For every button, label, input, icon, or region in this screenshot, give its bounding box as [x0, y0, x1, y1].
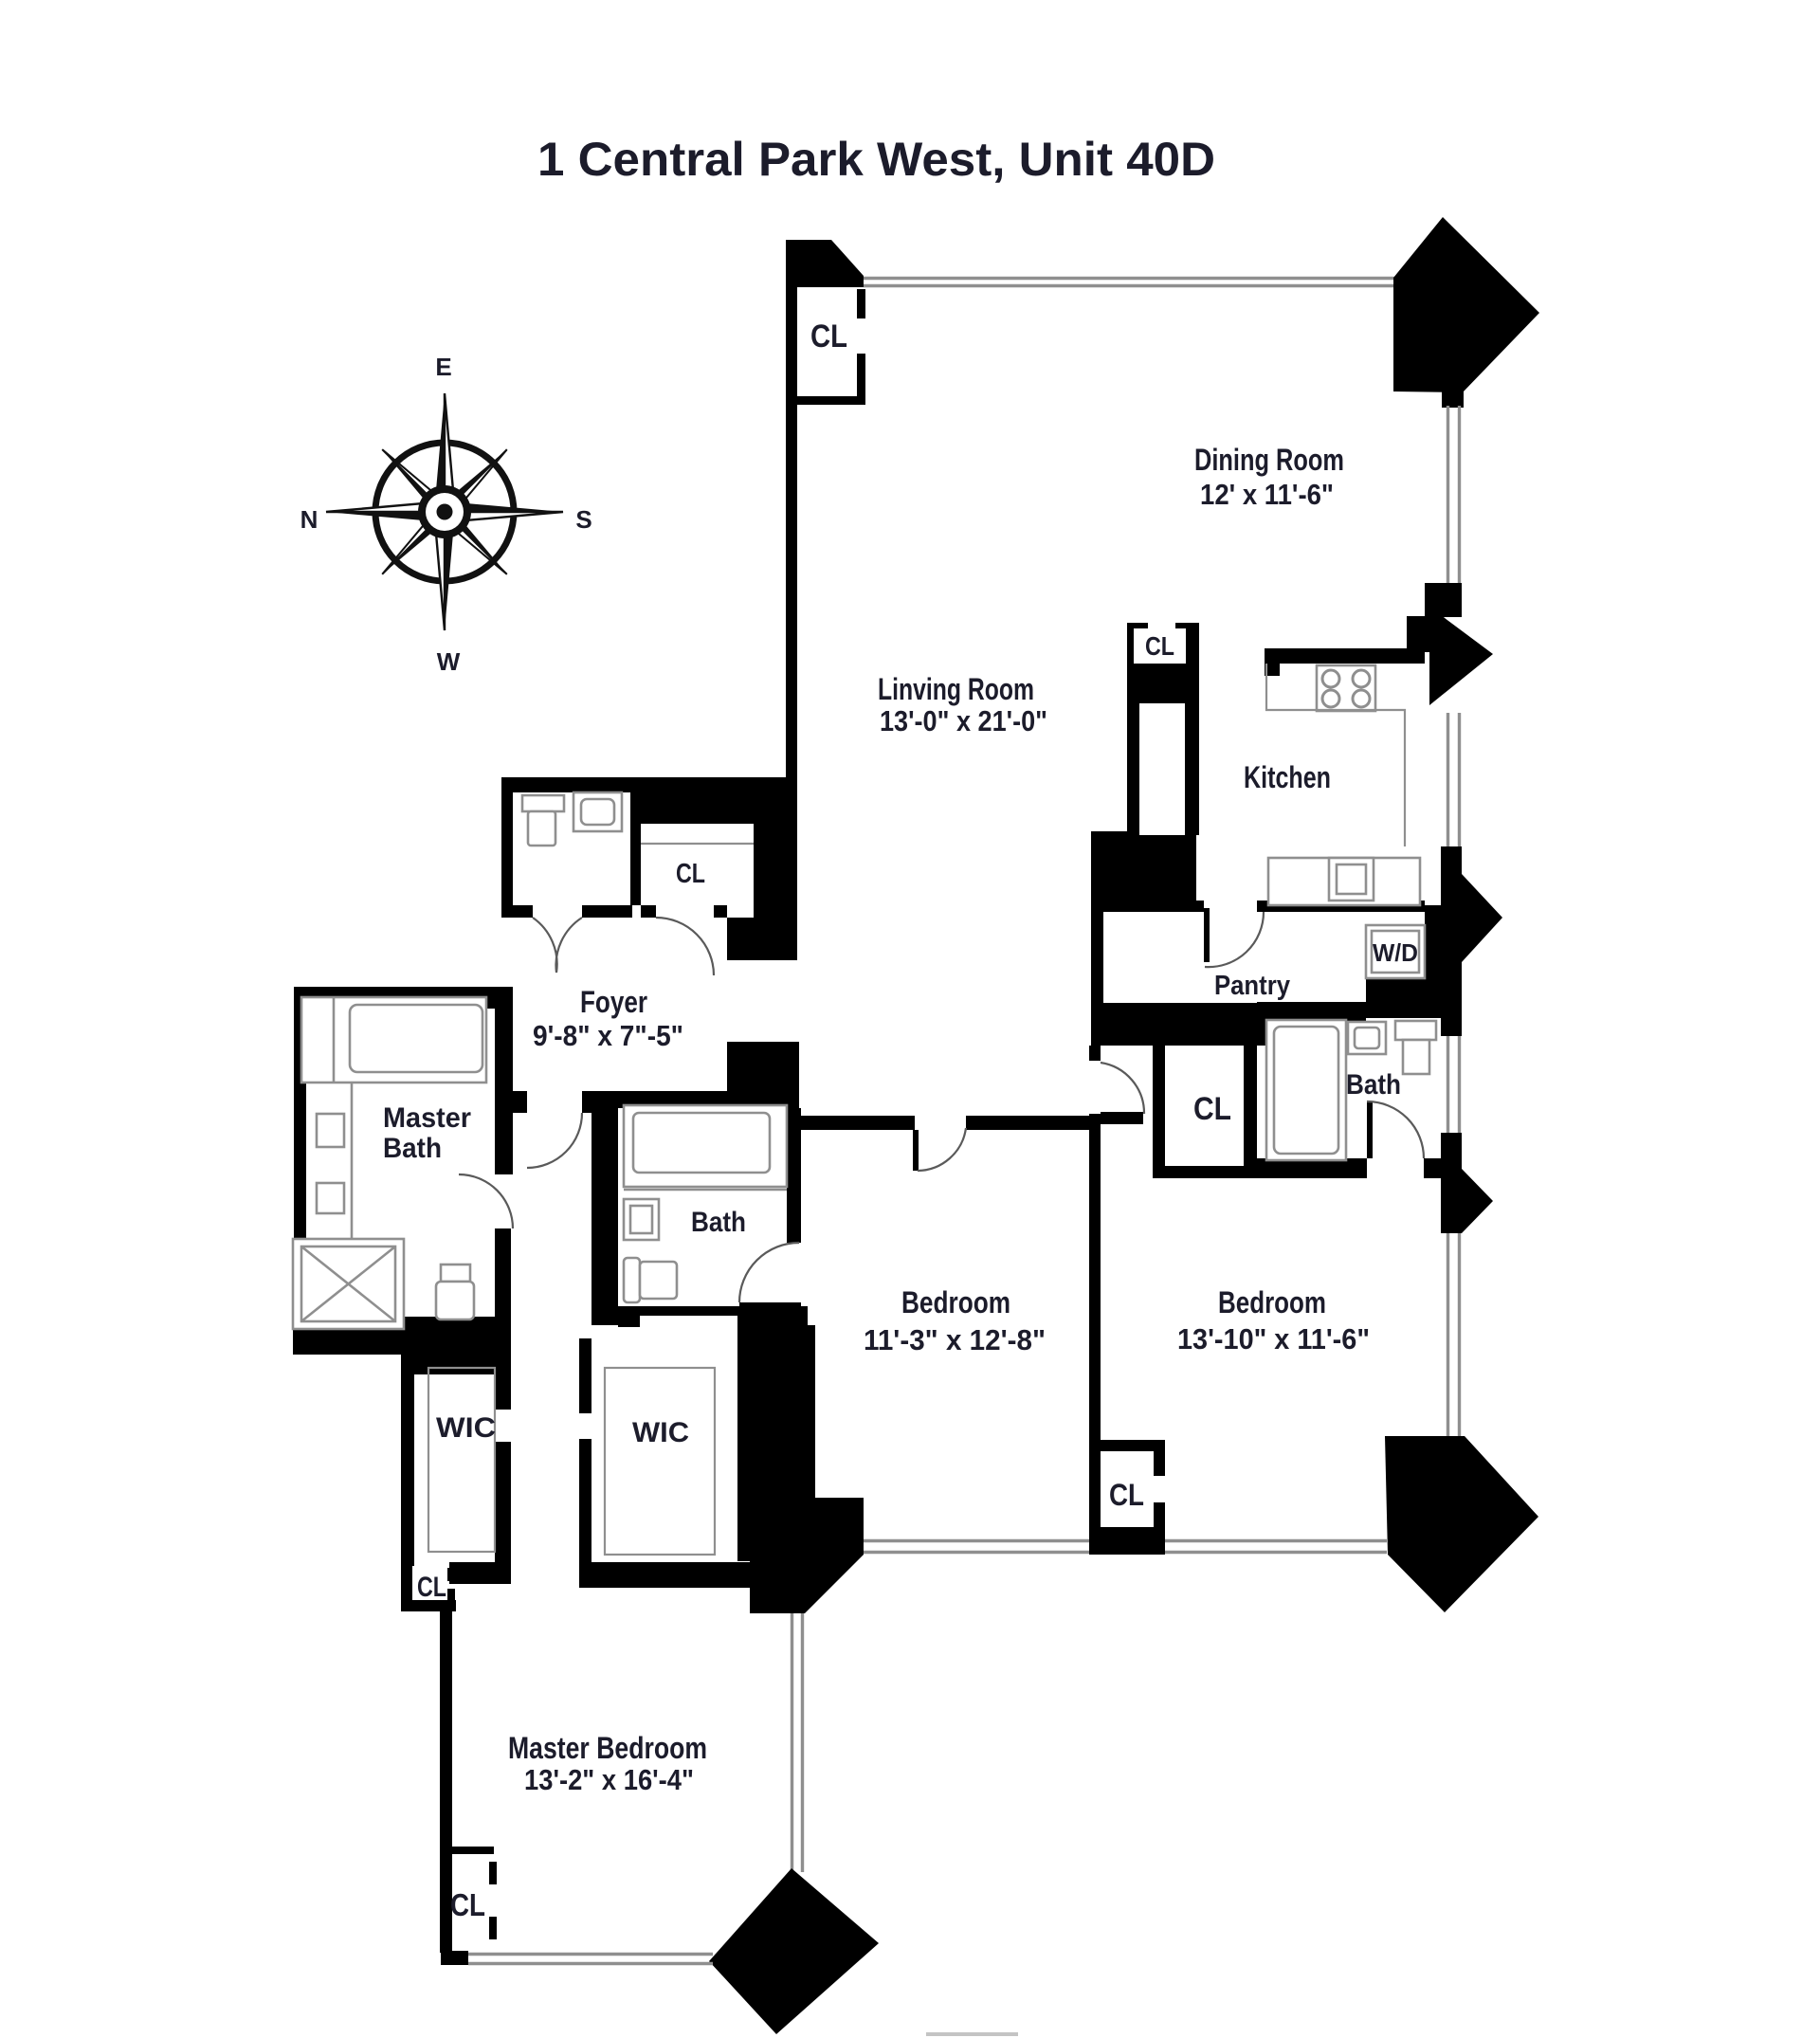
svg-text:Kitchen: Kitchen — [1244, 760, 1331, 794]
svg-text:CL: CL — [1145, 631, 1174, 661]
svg-text:CL: CL — [1109, 1478, 1144, 1512]
svg-text:CL: CL — [417, 1572, 446, 1603]
svg-text:CL: CL — [450, 1887, 485, 1922]
svg-text:CL: CL — [810, 318, 847, 355]
svg-text:9'-8" x 7"-5": 9'-8" x 7"-5" — [533, 1019, 683, 1052]
svg-text:CL: CL — [1193, 1091, 1231, 1127]
svg-text:W/D: W/D — [1373, 938, 1418, 967]
svg-text:Master Bedroom: Master Bedroom — [508, 1731, 707, 1765]
svg-text:W: W — [437, 647, 461, 676]
svg-text:12' x 11'-6": 12' x 11'-6" — [1200, 478, 1334, 511]
svg-text:1 Central Park West, Unit 40D: 1 Central Park West, Unit 40D — [537, 133, 1215, 186]
svg-text:Bath: Bath — [1346, 1069, 1401, 1101]
svg-text:CL: CL — [676, 859, 705, 889]
svg-text:S: S — [575, 505, 591, 534]
svg-text:Bath: Bath — [691, 1207, 746, 1238]
svg-text:13'-2" x 16'-4": 13'-2" x 16'-4" — [524, 1763, 694, 1796]
svg-text:13'-10" x 11'-6": 13'-10" x 11'-6" — [1177, 1322, 1370, 1356]
svg-text:Master: Master — [383, 1102, 471, 1134]
svg-text:E: E — [435, 353, 451, 381]
svg-text:Bedroom: Bedroom — [1218, 1285, 1326, 1319]
svg-text:N: N — [300, 505, 318, 534]
svg-text:Bath: Bath — [383, 1133, 442, 1164]
svg-text:13'-0" x 21'-0": 13'-0" x 21'-0" — [880, 704, 1047, 737]
svg-text:Pantry: Pantry — [1214, 971, 1290, 1001]
svg-text:Foyer: Foyer — [580, 985, 647, 1019]
svg-text:11'-3" x 12'-8": 11'-3" x 12'-8" — [864, 1323, 1046, 1356]
svg-text:Bedroom: Bedroom — [901, 1285, 1010, 1319]
svg-text:Dining Room: Dining Room — [1194, 443, 1344, 477]
svg-text:WIC: WIC — [436, 1412, 496, 1444]
svg-text:Linving Room: Linving Room — [878, 672, 1034, 706]
svg-text:WIC: WIC — [632, 1417, 689, 1448]
